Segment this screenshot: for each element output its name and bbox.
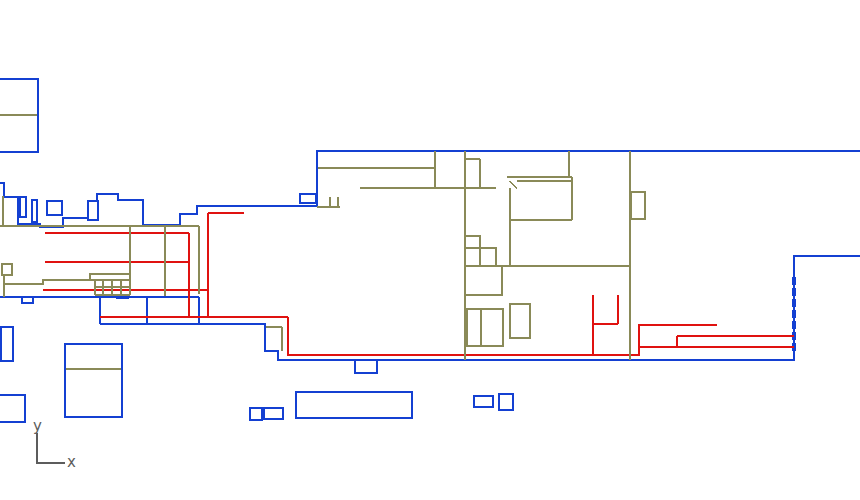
axis-indicator bbox=[37, 433, 65, 463]
blue-rect bbox=[250, 408, 262, 420]
axis-y-label: y bbox=[33, 419, 42, 434]
olive-rect bbox=[467, 309, 481, 346]
olive-line bbox=[509, 181, 517, 188]
olive-rect bbox=[2, 264, 12, 275]
blue-rect bbox=[20, 197, 26, 217]
olive-rect bbox=[510, 304, 530, 338]
blue-rect bbox=[1, 327, 13, 361]
olive-rect bbox=[631, 192, 645, 219]
blue-rect bbox=[300, 194, 316, 203]
olive-rect bbox=[481, 309, 503, 346]
blue-polyline bbox=[0, 151, 860, 227]
blue-rect bbox=[32, 200, 37, 222]
olive-rect bbox=[465, 266, 502, 295]
axis-x-label: x bbox=[67, 455, 76, 470]
blue-polyline bbox=[355, 360, 377, 373]
blue-rect bbox=[499, 394, 513, 410]
blue-rect bbox=[88, 201, 98, 220]
blue-rect bbox=[0, 395, 25, 422]
olive-rect bbox=[480, 248, 496, 266]
blue-rect bbox=[65, 344, 122, 417]
blue-rect bbox=[296, 392, 412, 418]
drawing-canvas: y x bbox=[0, 0, 860, 500]
blue-rect bbox=[264, 408, 283, 419]
olive-polyline bbox=[4, 274, 130, 284]
blue-polyline bbox=[100, 256, 860, 360]
floor-plan-svg bbox=[0, 0, 860, 500]
blue-rect bbox=[474, 396, 493, 407]
blue-rect bbox=[47, 201, 62, 215]
olive-rect bbox=[465, 236, 480, 248]
